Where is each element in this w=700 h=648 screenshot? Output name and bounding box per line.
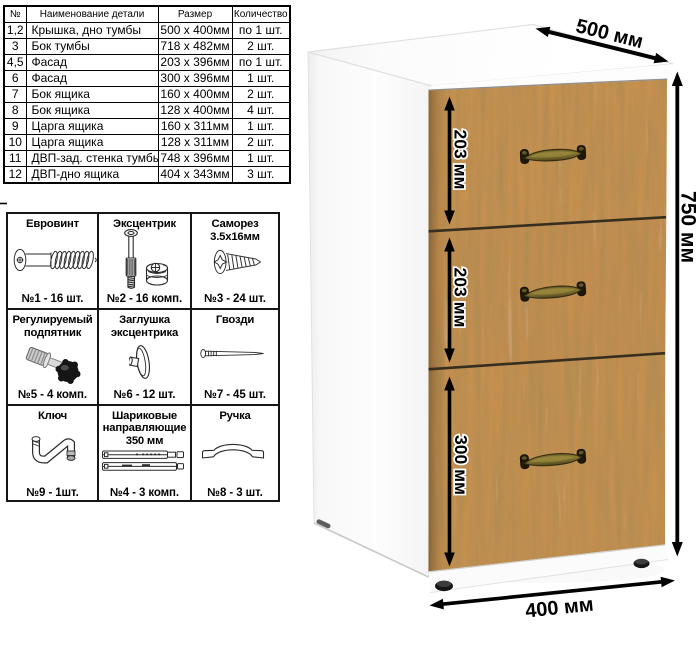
svg-text:203 мм: 203 мм: [451, 268, 471, 328]
svg-text:300 мм: 300 мм: [451, 435, 471, 495]
svg-text:203 мм: 203 мм: [451, 130, 471, 190]
svg-text:400 мм: 400 мм: [524, 594, 594, 623]
svg-text:750 мм: 750 мм: [677, 191, 700, 263]
